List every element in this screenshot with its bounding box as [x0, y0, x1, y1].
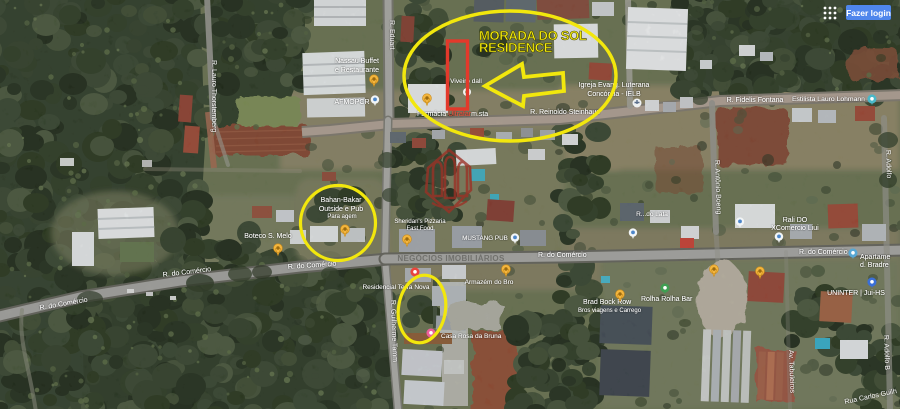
svg-text:Fast Food: Fast Food: [406, 226, 433, 232]
svg-text:Casa Rosa da Bruna: Casa Rosa da Bruna: [441, 333, 502, 340]
svg-text:Apartame: Apartame: [860, 254, 890, 261]
svg-text:R. Eduart: R. Eduart: [388, 20, 395, 50]
svg-text:R. do Comércio: R. do Comércio: [799, 249, 848, 256]
svg-text:R. Reinoldo Steinhaus: R. Reinoldo Steinhaus: [530, 109, 600, 116]
svg-text:R. Fidelis Fontana: R. Fidelis Fontana: [727, 97, 784, 104]
svg-text:e Restaurante: e Restaurante: [335, 67, 379, 74]
svg-text:RESIDENCE: RESIDENCE: [479, 40, 553, 55]
svg-text:R. Adolfo: R. Adolfo: [884, 150, 892, 179]
svg-text:d. Bradre: d. Bradre: [860, 262, 889, 269]
svg-text:R...do Lata: R...do Lata: [636, 211, 668, 218]
svg-text:Brad Bock Row: Brad Bock Row: [583, 299, 632, 306]
svg-text:R. Adolfo B: R. Adolfo B: [882, 335, 890, 371]
svg-text:Outside e Pub: Outside e Pub: [319, 206, 363, 213]
svg-text:Armazém do Bro: Armazém do Bro: [465, 279, 514, 286]
svg-text:AFMOPCR: AFMOPCR: [335, 99, 370, 106]
svg-text:Para agem: Para agem: [327, 214, 356, 220]
svg-text:Sheridan's Pizzaria: Sheridan's Pizzaria: [394, 219, 446, 225]
svg-text:UNINTER | Jui-HS: UNINTER | Jui-HS: [827, 290, 885, 297]
svg-text:Rali DO: Rali DO: [783, 217, 808, 224]
svg-text:Fazer login: Fazer login: [846, 8, 891, 18]
svg-text:MUSTANG PUB: MUSTANG PUB: [462, 235, 508, 242]
svg-text:Rolha Rolha Bar: Rolha Rolha Bar: [641, 296, 693, 303]
svg-text:Residencial Terra Nova: Residencial Terra Nova: [362, 284, 429, 291]
svg-text:Bahan-Bakar: Bahan-Bakar: [321, 197, 363, 204]
svg-text:Bros viagens e Carrego: Bros viagens e Carrego: [578, 308, 642, 314]
svg-text:Estilista Lauro Lohmann: Estilista Lauro Lohmann: [792, 96, 865, 103]
svg-text:R. do Comércio: R. do Comércio: [538, 252, 587, 259]
svg-text:NEGÓCIOS IMOBILIÁRIOS: NEGÓCIOS IMOBILIÁRIOS: [397, 254, 505, 263]
svg-text:Nassau Buffet: Nassau Buffet: [335, 58, 379, 65]
svg-text:Boteco S. Melo: Boteco S. Melo: [244, 233, 292, 240]
svg-text:XComercio Liui: XComercio Liui: [771, 225, 819, 232]
svg-text:R. Lauro Thorstemberg: R. Lauro Thorstemberg: [210, 60, 217, 132]
